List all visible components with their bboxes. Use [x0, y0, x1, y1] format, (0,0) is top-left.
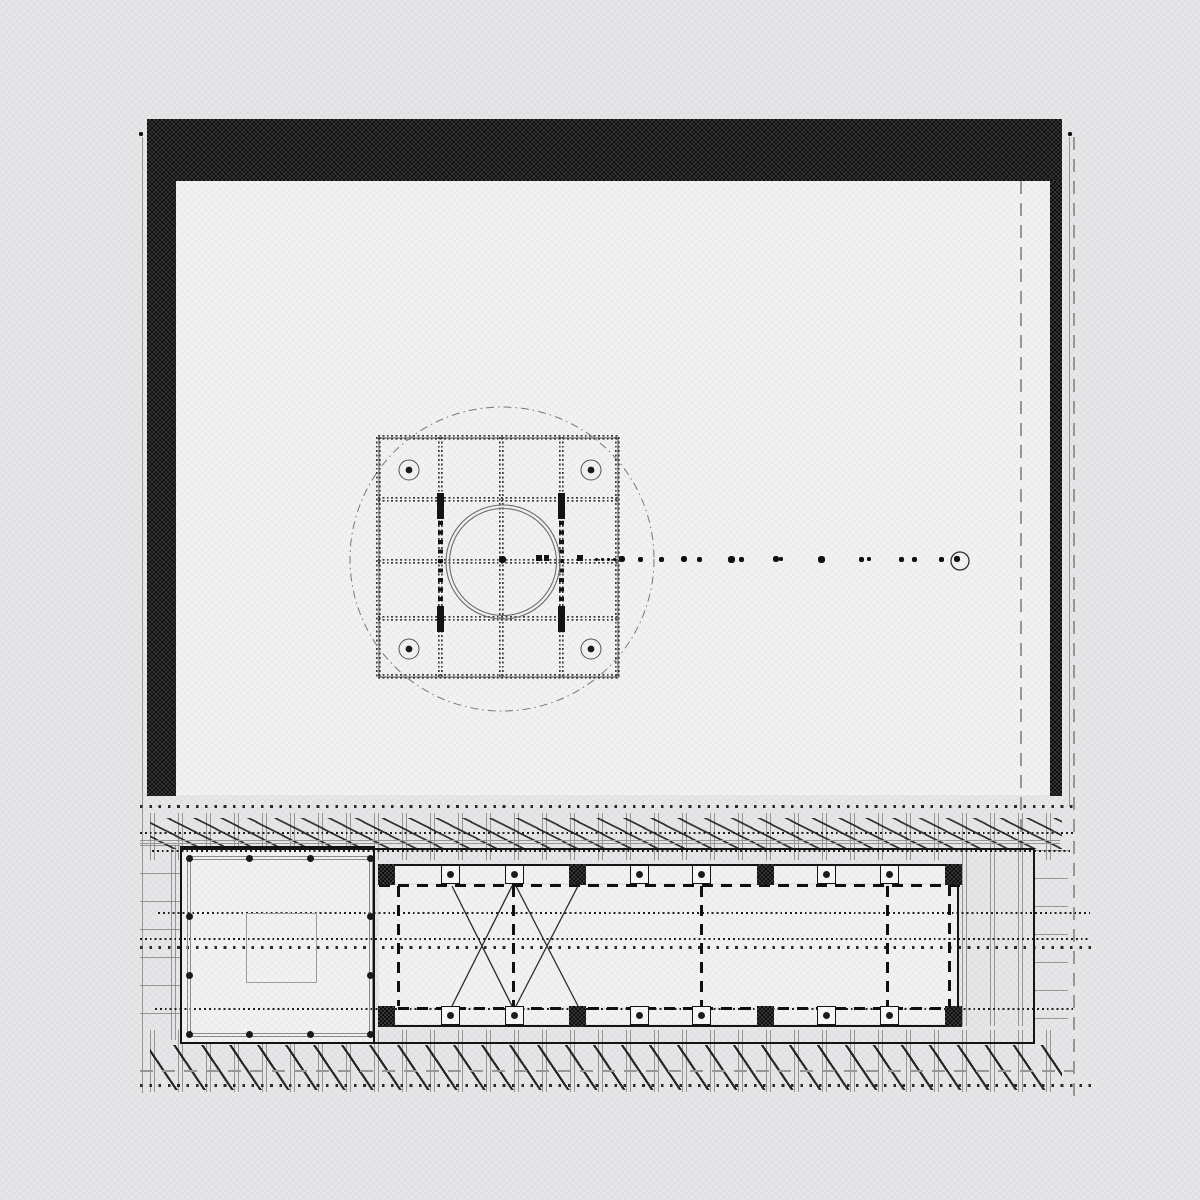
pier-block [378, 1006, 395, 1027]
column-marker [692, 1006, 711, 1025]
column-marker [630, 865, 649, 884]
pavilion-post-dot [186, 972, 193, 979]
column-marker [505, 865, 524, 884]
pavilion-post-dot [307, 855, 314, 862]
pier-block [945, 864, 962, 885]
column-marker [441, 865, 460, 884]
column-dot [511, 871, 518, 878]
column-dot [886, 871, 893, 878]
column-dot [698, 871, 705, 878]
column-dot [636, 1012, 643, 1019]
column-marker [505, 1006, 524, 1025]
pier-block [569, 1006, 586, 1027]
pavilion-post-dot [367, 855, 374, 862]
column-dot [447, 871, 454, 878]
pavilion-post-dot [367, 972, 374, 979]
column-dot [823, 1012, 830, 1019]
pier-block [569, 864, 586, 885]
column-marker [880, 1006, 899, 1025]
column-marker [630, 1006, 649, 1025]
pavilion-post-dot [307, 1031, 314, 1038]
column-marker [817, 865, 836, 884]
column-dot [636, 871, 643, 878]
pavilion-post-dot [186, 1031, 193, 1038]
column-marker [441, 1006, 460, 1025]
pier-block [757, 864, 774, 885]
drawing-overlay [0, 0, 1200, 1200]
pier-block [757, 1006, 774, 1027]
pier-block [378, 864, 395, 885]
pier-block [945, 1006, 962, 1027]
pavilion-post-dot [367, 1031, 374, 1038]
column-dot [698, 1012, 705, 1019]
column-marker [880, 865, 899, 884]
blueprint-canvas [0, 0, 1200, 1200]
column-marker [817, 1006, 836, 1025]
column-dot [823, 871, 830, 878]
column-dot [886, 1012, 893, 1019]
pavilion-post-dot [367, 913, 374, 920]
column-dot [447, 1012, 454, 1019]
pavilion-post-dot [246, 855, 253, 862]
pavilion-post-dot [186, 913, 193, 920]
pavilion-post-dot [246, 1031, 253, 1038]
column-marker [692, 865, 711, 884]
pavilion-post-dot [186, 855, 193, 862]
column-dot [511, 1012, 518, 1019]
